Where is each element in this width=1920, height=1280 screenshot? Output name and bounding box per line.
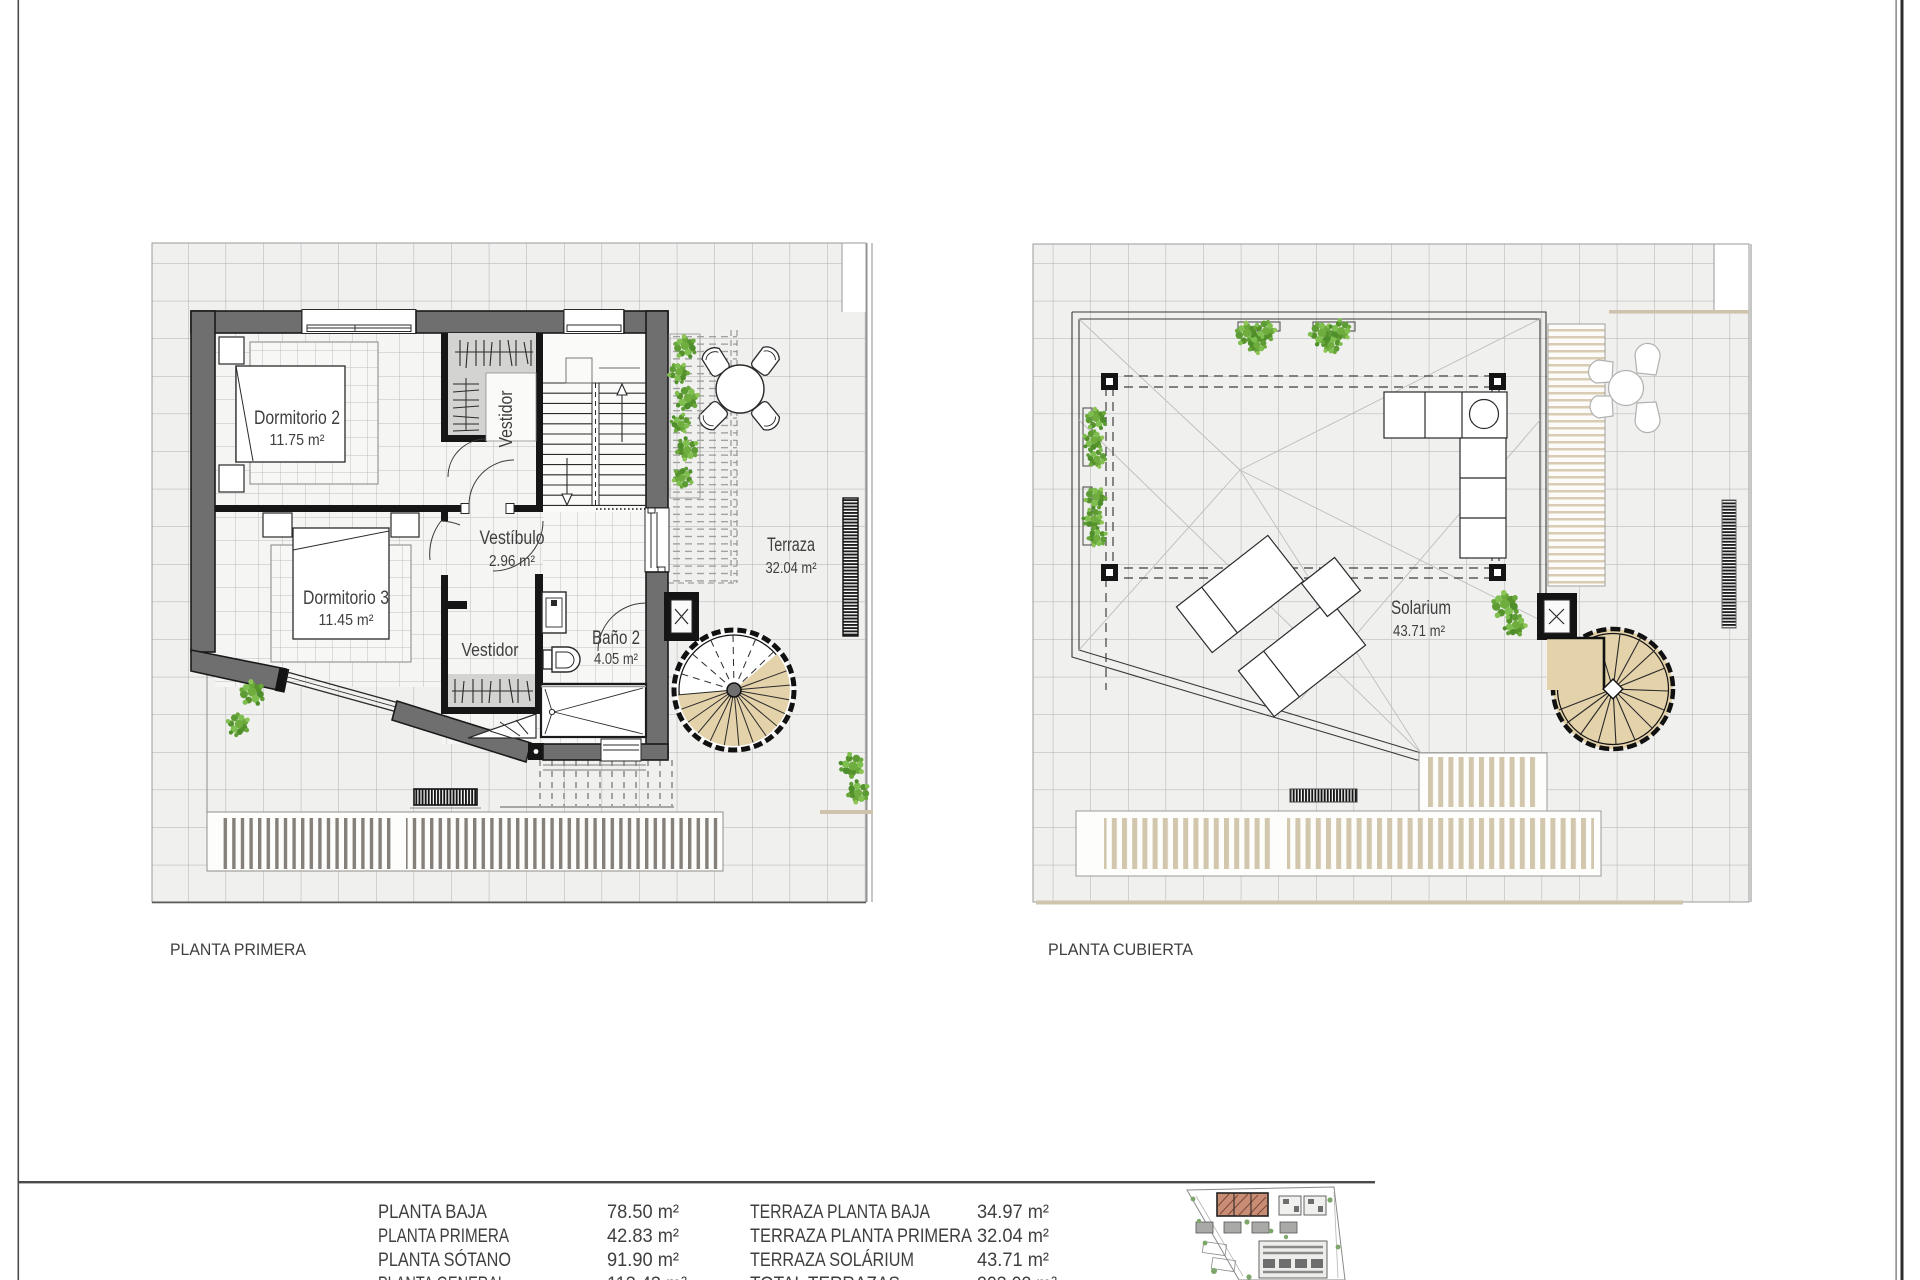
svg-text:TERRAZA PLANTA BAJA: TERRAZA PLANTA BAJA: [750, 1201, 930, 1223]
svg-text:2.96 m²: 2.96 m²: [489, 553, 535, 570]
svg-text:PLANTA SÓTANO: PLANTA SÓTANO: [378, 1248, 511, 1271]
svg-text:PLANTA CUBIERTA: PLANTA CUBIERTA: [1048, 940, 1194, 959]
svg-text:32.04 m²: 32.04 m²: [766, 560, 817, 577]
svg-text:34.97 m²: 34.97 m²: [977, 1201, 1049, 1223]
svg-text:Baño 2: Baño 2: [592, 628, 640, 649]
svg-text:91.90 m²: 91.90 m²: [607, 1249, 679, 1271]
svg-text:11.45 m²: 11.45 m²: [319, 612, 374, 629]
svg-text:78.50 m²: 78.50 m²: [607, 1201, 679, 1223]
svg-text:Vestíbulo: Vestíbulo: [480, 528, 545, 549]
svg-text:Terraza: Terraza: [767, 535, 815, 556]
svg-text:Solarium: Solarium: [1391, 598, 1451, 619]
svg-text:43.71 m²: 43.71 m²: [1393, 623, 1445, 640]
svg-text:PLANTA GENERAL: PLANTA GENERAL: [378, 1273, 506, 1280]
svg-text:Vestidor: Vestidor: [462, 640, 519, 660]
svg-text:113.43 m²: 113.43 m²: [607, 1273, 687, 1280]
svg-text:43.71 m²: 43.71 m²: [977, 1249, 1049, 1271]
svg-text:203.02 m²: 203.02 m²: [977, 1273, 1057, 1280]
svg-text:TOTAL TERRAZAS: TOTAL TERRAZAS: [750, 1273, 900, 1280]
svg-text:Dormitorio 2: Dormitorio 2: [254, 408, 340, 429]
svg-text:32.04 m²: 32.04 m²: [977, 1225, 1049, 1247]
svg-text:TERRAZA PLANTA PRIMERA: TERRAZA PLANTA PRIMERA: [750, 1225, 972, 1247]
svg-text:PLANTA BAJA: PLANTA BAJA: [378, 1201, 487, 1223]
svg-text:Dormitorio 3: Dormitorio 3: [303, 588, 389, 609]
svg-text:PLANTA PRIMERA: PLANTA PRIMERA: [170, 940, 307, 959]
svg-text:11.75 m²: 11.75 m²: [270, 432, 325, 449]
svg-text:4.05 m²: 4.05 m²: [594, 651, 638, 668]
svg-text:42.83 m²: 42.83 m²: [607, 1225, 679, 1247]
svg-text:Vestidor: Vestidor: [496, 391, 516, 448]
svg-text:TERRAZA SOLÁRIUM: TERRAZA SOLÁRIUM: [750, 1248, 914, 1271]
svg-text:PLANTA PRIMERA: PLANTA PRIMERA: [378, 1225, 509, 1247]
